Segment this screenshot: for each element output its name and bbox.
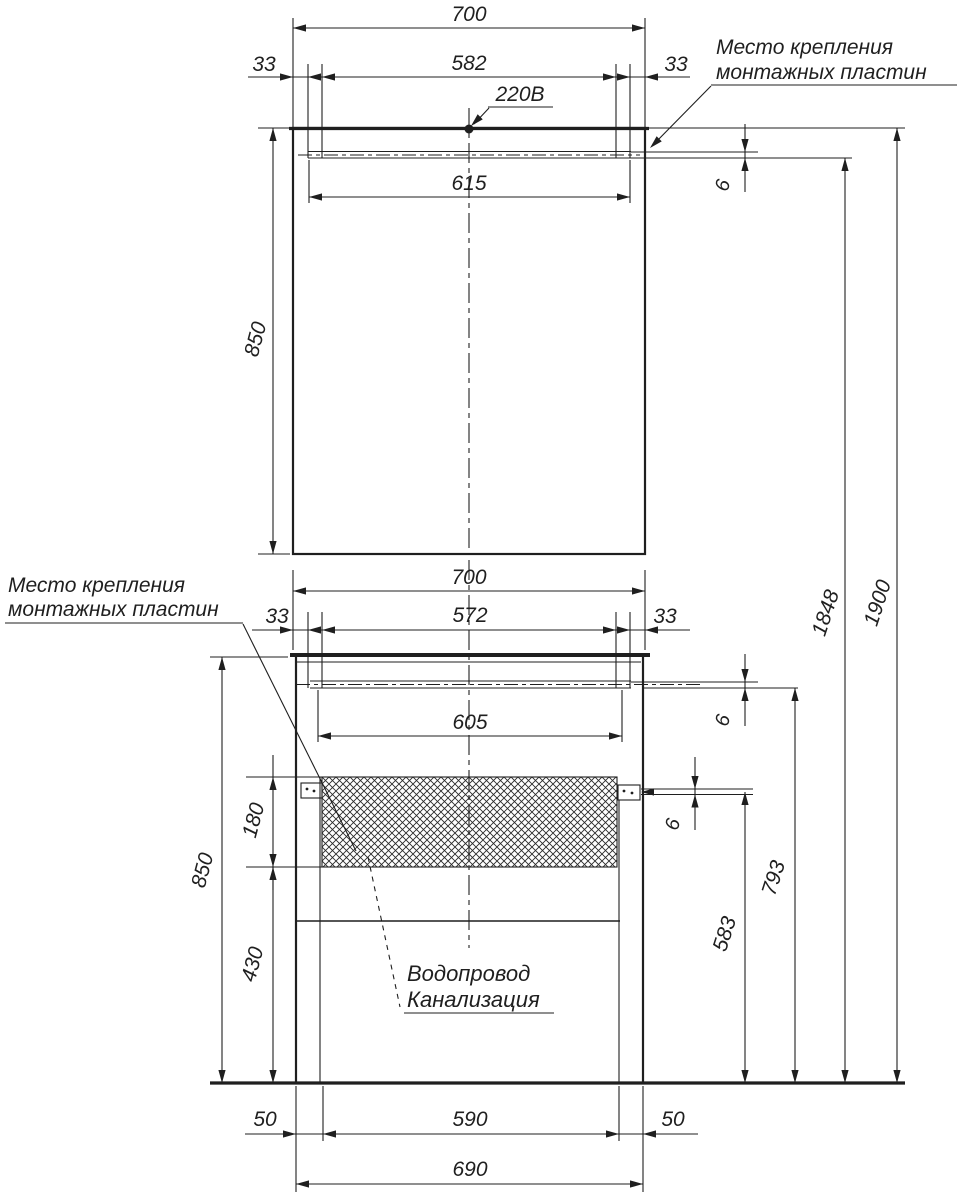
dim-mirror-offset-left: 33 (252, 53, 276, 76)
mount-note-top-line2: монтажных пластин (716, 61, 927, 84)
technical-drawing-page: 220В Место крепления монтажных пластин 7… (0, 0, 965, 1200)
dim-mirror-plate-span: 582 (451, 52, 486, 75)
dim-base-offset-right: 50 (661, 1108, 685, 1131)
mount-note-left-line1: Место крепления (8, 574, 185, 597)
dim-mirror-offset-right: 33 (664, 53, 688, 76)
dim-cabinet-plate-span: 572 (452, 604, 487, 627)
dim-cabinet-offset-right: 33 (653, 605, 677, 628)
dim-mirror-width: 700 (451, 3, 486, 26)
technical-drawing: 220В Место крепления монтажных пластин 7… (0, 0, 965, 1200)
dim-mirror-plate-width: 615 (451, 172, 486, 195)
dim-base-width: 690 (452, 1158, 487, 1181)
power-dot (465, 125, 474, 134)
plumbing-label-line1: Водопровод (407, 961, 530, 986)
mount-note-left-line2: монтажных пластин (8, 598, 219, 621)
dim-base-offset-left: 50 (253, 1108, 277, 1131)
mount-note-top-line1: Место крепления (716, 36, 893, 59)
plumbing-label-line2: Канализация (407, 987, 540, 1012)
dim-cabinet-width: 700 (451, 566, 486, 589)
dim-base-inner-width: 590 (452, 1108, 487, 1131)
dim-cabinet-offset-left: 33 (265, 605, 289, 628)
power-label: 220В (494, 83, 544, 106)
dim-cabinet-plate-width: 605 (452, 711, 487, 734)
